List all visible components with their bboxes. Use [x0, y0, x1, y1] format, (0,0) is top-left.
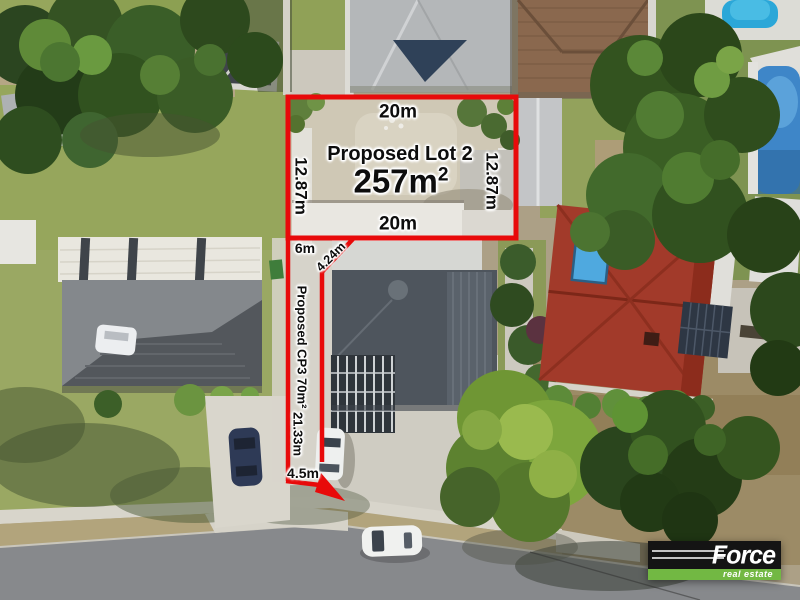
corridor-name: Proposed CP3 70m²	[296, 286, 309, 409]
lot-right-dimension: 12.87m	[484, 152, 501, 210]
lot-bottom-dimension: 20m	[379, 215, 417, 234]
logo-black-panel: Force	[648, 541, 781, 569]
logo-brand-text: Force	[712, 541, 775, 569]
aerial-photo: 20m Proposed Lot 2 257m2 20m 12.87m 12.8…	[0, 0, 800, 600]
corridor-bottom-dimension: 4.5m	[287, 466, 319, 480]
corridor-arrowhead	[315, 473, 345, 501]
corridor-top-dimension: 6m	[295, 241, 315, 255]
logo-green-bar: real estate	[648, 569, 781, 580]
logo-tagline: real estate	[723, 570, 773, 579]
survey-overlay	[0, 0, 800, 600]
corridor-length-dimension: 21.33m	[292, 412, 305, 456]
brand-logo: Force real estate	[648, 541, 781, 580]
lot-area: 257m2	[353, 165, 448, 198]
lot-left-dimension: 12.87m	[293, 157, 310, 215]
lot-title: Proposed Lot 2	[327, 144, 473, 164]
lot-top-dimension: 20m	[379, 103, 417, 122]
